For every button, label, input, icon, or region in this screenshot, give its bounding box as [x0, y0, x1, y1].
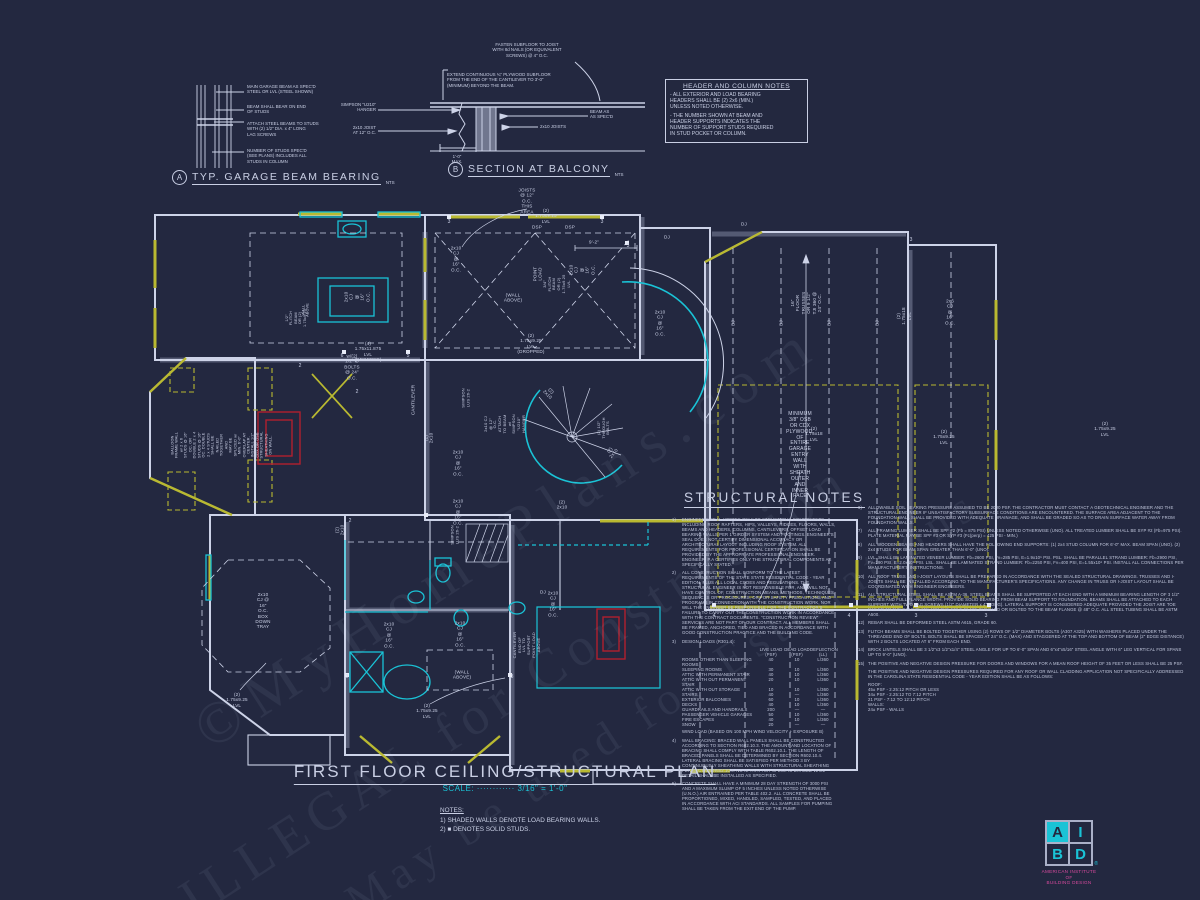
structural-note: 10)ALL ROOF TRUSS AND I-JOIST LAYOUTS SH…	[858, 574, 1188, 589]
registered-mark: ®	[1094, 861, 1098, 867]
load-value: 10	[784, 677, 810, 687]
plan-label: 2x6 CJ @ 16" O.C.	[945, 298, 955, 325]
note-text: ENGINEER'S SEAL APPLIES ONLY TO STRUCTUR…	[682, 517, 836, 567]
aibd-caption: AMERICAN INSTITUTE OF BUILDING DESIGN	[1030, 869, 1108, 886]
detail-a-note: ATTACH STEEL BEAMS TO STUDS WITH (2) 1/2…	[247, 121, 319, 137]
note-number	[858, 682, 868, 712]
plan-label: BJ	[778, 320, 783, 326]
detail-b-nts: NTS	[615, 172, 624, 177]
plan-label: SIMPSON LUS 26-2	[461, 388, 470, 408]
plan-label: (WALL ABOVE)	[453, 670, 471, 681]
detail-a-note: MAIN GARAGE BEAM AS SPEC'D STEEL OR LVL …	[247, 84, 316, 95]
stud-count: 3	[601, 219, 604, 225]
aibd-letter-i: I	[1069, 821, 1092, 843]
note-number: 12)	[858, 620, 868, 625]
plan-label: (2) 1.75x9.25 LVL	[1094, 421, 1116, 437]
stud-count: 3	[448, 219, 451, 225]
structural-note: 7)ALL FRAMING LUMBER SHALL BE SPF #2 (Fb…	[858, 528, 1188, 538]
plan-note-2: 2) ■ DENOTES SOLID STUDS.	[440, 825, 600, 835]
stud-count: 2	[356, 389, 359, 395]
plan-label: (WALL ABOVE)	[504, 293, 522, 304]
load-table-col-header: LIVE LOAD (PSF)	[758, 647, 784, 657]
structural-note: 6)ALLOWABLE SOIL BEARING PRESSURE ASSUME…	[858, 505, 1188, 525]
note-number: 13)	[858, 629, 868, 644]
balcony-label-max: 1'-0" MAX.	[452, 154, 463, 165]
stud-count: 5	[407, 353, 410, 359]
note-number: 5)	[672, 781, 682, 811]
note-text: FLITCH BEAMS SHALL BE BOLTED TOGETHER US…	[868, 629, 1188, 644]
structural-note: 15)THE POSITIVE AND NEGATIVE DESIGN PRES…	[858, 661, 1188, 666]
note-text: DESIGN LOADS (R301.4):	[682, 639, 836, 644]
stud-count: 3	[511, 674, 514, 680]
detail-a-bubble: A	[172, 170, 187, 185]
stud-count: 2	[299, 363, 302, 369]
detail-b-title: B SECTION AT BALCONY NTS	[448, 162, 624, 177]
plan-label: (2) 1/2" THROUGH BOLTS	[597, 417, 611, 438]
blueprint-sheet: ©MyHomePlans.comILLEGAL for Construction…	[0, 0, 1200, 900]
load-value: 10	[784, 657, 810, 667]
note-number: 1)	[672, 517, 682, 567]
plan-label: BJ	[874, 320, 879, 326]
stud-count: 2	[349, 518, 352, 524]
structural-note: 13)FLITCH BEAMS SHALL BE BOLTED TOGETHER…	[858, 629, 1188, 644]
note-text: LVL. SHALL BE LAMINATED VENEER LUMBER: F…	[868, 555, 1188, 570]
plan-label: w/(2) 1/2" Ø BOLTS @ 24" O.C.	[344, 353, 359, 380]
load-table-col-header: DEFLECTION (LL)	[810, 647, 836, 657]
note-number: 14)	[858, 647, 868, 657]
note-number: 3)	[672, 639, 682, 644]
note-text: BRICK LINTELS SHALL BE 3 1/2"x3 1/2"x1/4…	[868, 647, 1188, 657]
load-value: —	[784, 722, 810, 727]
balcony-label-beam: BEAM AS AS SPEC'D	[590, 109, 613, 120]
structural-note: 12)REBAR SHALL BE DEFORMED STEEL ASTM A6…	[858, 620, 1188, 625]
plan-label: (2) 2x10	[557, 500, 568, 511]
load-table-row: SNOW20——	[682, 722, 836, 727]
plan-label: JOISTS @ 12" O.C. THIS AREA	[519, 187, 536, 214]
detail-a-drawing	[197, 85, 244, 168]
plan-label: CANTILEVER END OF LVL TO SUPPORT POINT L…	[513, 632, 541, 659]
note-text: ROOF: 45± PSF - 2.25:12 PITCH OR LESS 34…	[868, 682, 1188, 712]
detail-a-title: A TYP. GARAGE BEAM BEARING NTS	[172, 170, 395, 185]
note-number: 11)	[858, 592, 868, 617]
aibd-letter-d: D	[1069, 843, 1092, 865]
plan-label: 2x10 CJ @ 16" O.C. BOX DOWN TRAY	[255, 592, 270, 630]
detail-a-note: NUMBER OF STUDS SPEC'D (SEE PLANS) INCLU…	[247, 148, 307, 164]
header-notes-title: HEADER AND COLUMN NOTES	[670, 83, 803, 90]
plan-label: (2) 2x10	[335, 525, 346, 536]
note-number: 10)	[858, 574, 868, 589]
stud-count: 3	[346, 674, 349, 680]
stud-count: 4	[713, 613, 716, 619]
plan-label: DJ	[540, 589, 546, 594]
detail-a-note: BEAM SHALL BEAR ON END OF STUDS	[247, 104, 306, 115]
balcony-label-hanger: SIMPSON "U210" HANGER	[341, 102, 376, 113]
plan-label: (2) 2x10	[424, 433, 435, 444]
plan-label: 2x10 CJ @ 12" O.C. ATTACH TO BEAM w/ SIM…	[484, 414, 526, 434]
plan-label: CANTILEVER	[410, 385, 415, 415]
structural-note: ROOF: 45± PSF - 2.25:12 PITCH OR LESS 34…	[858, 682, 1188, 712]
detail-a-title-text: TYP. GARAGE BEAM BEARING	[192, 171, 381, 185]
balcony-label-joist: 2x10 JOIST AT 12" O.C.	[353, 125, 376, 136]
stud-count: 6	[341, 353, 344, 359]
plan-scale: SCALE: ············ 3/16" = 1'-0"	[443, 784, 568, 793]
aibd-logo-grid: A I B D ®	[1045, 820, 1093, 866]
load-value: 20	[758, 677, 784, 687]
note-text: ALLOWABLE SOIL BEARING PRESSURE ASSUMED …	[868, 505, 1188, 525]
structural-notes-right-column: 6)ALLOWABLE SOIL BEARING PRESSURE ASSUME…	[858, 505, 1188, 716]
plan-label: MINIMUM 3/8" OSB OR CDX PLYWOOD, OF ENTI…	[786, 412, 814, 500]
plan-label: 3/4" FLITCH BEAM OR (2) 1.75x9.25 LVL	[543, 275, 571, 294]
plan-label: DJ	[664, 234, 670, 239]
balcony-note-extend: EXTEND CONTINUOUS ¾" PLYWOOD SUBFLOOR FR…	[447, 72, 551, 88]
stud-count: 3	[985, 613, 988, 619]
aibd-letter-a: A	[1046, 821, 1069, 843]
structural-note: 9)LVL. SHALL BE LAMINATED VENEER LUMBER:…	[858, 555, 1188, 570]
plan-label: (2) 1.75x9.25 LVL (DROPPED)	[517, 333, 544, 355]
stud-count: 3	[915, 613, 918, 619]
door-swings	[312, 374, 352, 418]
structural-note: THE POSITIVE AND NEGATIVE DESIGN PRESSUR…	[858, 669, 1188, 679]
structural-note: 5)CONCRETE SHALL HAVE A MINIMUM 28 DAY S…	[672, 781, 836, 811]
note-text: CONCRETE SHALL HAVE A MINIMUM 28 DAY STR…	[682, 781, 836, 811]
plan-label: 2x10 CJ @ 16" O.C.	[384, 621, 395, 648]
balcony-note-fasten: FASTEN SUBFLOOR TO JOIST WITH 8d NAILS (…	[492, 42, 561, 58]
header-column-notes-box: HEADER AND COLUMN NOTES - ALL EXTERIOR A…	[665, 79, 808, 143]
plan-note-1: 1) SHADED WALLS DENOTE LOAD BEARING WALL…	[440, 816, 600, 826]
load-table: LIVE LOAD (PSF)DEAD LOAD (PSF)DEFLECTION…	[682, 647, 836, 734]
header-notes-body: - ALL EXTERIOR AND LOAD BEARING HEADERS …	[670, 92, 803, 137]
note-text: ALL FRAMING LUMBER SHALL BE SPF #2 (Fb =…	[868, 528, 1188, 538]
structural-notes-title: STRUCTURAL NOTES	[684, 490, 865, 508]
header-note-item: - ALL EXTERIOR AND LOAD BEARING HEADERS …	[670, 92, 803, 111]
load-table-header: LIVE LOAD (PSF)DEAD LOAD (PSF)DEFLECTION…	[682, 647, 836, 657]
plan-label: 2x10 CJ @ 16" O.C.	[451, 245, 462, 272]
plan-notes: NOTES: 1) SHADED WALLS DENOTE LOAD BEARI…	[440, 806, 600, 835]
plan-label: BALLOON FRAME WALL w/ 2 x 6 STUDS @ 16" …	[171, 431, 274, 458]
balcony-label-joists2: 2x10 JOISTS	[540, 124, 566, 129]
load-value: L/360	[810, 677, 836, 687]
load-value: 40	[758, 657, 784, 667]
note-text: ALL ROOF TRUSS AND I-JOIST LAYOUTS SHALL…	[868, 574, 1188, 589]
plan-label: DSP	[532, 224, 542, 229]
note-text: REBAR SHALL BE DEFORMED STEEL ASTM A615,…	[868, 620, 1188, 625]
note-number: 8)	[858, 542, 868, 552]
note-text: ALL WOODEN BEAMS AND HEADERS SHALL HAVE …	[868, 542, 1188, 552]
plan-label: 2x10 CJ @ 16" O.C.	[453, 449, 464, 476]
load-table-row: ROOMS OTHER THAN SLEEPING ROOMS4010L/360	[682, 657, 836, 667]
load-category: ATTIC WITH OUT PERMANENT STAIR	[682, 677, 758, 687]
note-number: 6)	[858, 505, 868, 525]
stud-count: 3	[910, 237, 913, 243]
note-text: THE POSITIVE AND NEGATIVE DESIGN PRESSUR…	[868, 669, 1188, 679]
wind-load-line: WIND LOAD (BASED ON 100 MPH WIND VELOCIT…	[682, 729, 836, 734]
load-table-title: 3)DESIGN LOADS (R301.4):	[672, 639, 836, 644]
structural-note: 2)ALL CONSTRUCTION SHALL CONFORM TO THE …	[672, 570, 836, 635]
plan-label: 2x10 CJ @ 16" O.C.	[343, 292, 370, 303]
note-number: 9)	[858, 555, 868, 570]
plan-label: 2x10 CJ @ 16" O.C.	[568, 265, 595, 276]
structural-note: 14)BRICK LINTELS SHALL BE 3 1/2"x3 1/2"x…	[858, 647, 1188, 657]
plan-label: BJ	[826, 320, 831, 326]
plan-notes-title: NOTES:	[440, 806, 600, 816]
stud-count: 3	[627, 243, 630, 249]
plan-label: DSP	[565, 224, 575, 229]
plan-label: SIMPSON LUS 26-2	[450, 525, 459, 545]
stud-count: 4	[848, 613, 851, 619]
load-table-corner	[682, 647, 758, 657]
detail-a-nts: NTS	[386, 180, 395, 185]
structural-note: 1)ENGINEER'S SEAL APPLIES ONLY TO STRUCT…	[672, 517, 836, 567]
structural-note: 11)ALL STRUCTURAL STEEL SHALL BE ASTM A-…	[858, 592, 1188, 617]
plan-label: (2) 1.75x9.25 LVL	[416, 703, 438, 719]
load-value: 20	[758, 722, 784, 727]
load-category: ROOMS OTHER THAN SLEEPING ROOMS	[682, 657, 758, 667]
load-table-row: ATTIC WITH OUT PERMANENT STAIR2010L/360	[682, 677, 836, 687]
plan-label: 2x10 CJ @ 16" O.C.	[453, 498, 464, 525]
plan-label: (2) 1.75x18 LVL	[896, 307, 912, 324]
kitchen-island	[206, 212, 420, 600]
plan-label: DJ	[741, 221, 747, 226]
note-number	[858, 669, 868, 679]
plan-label: 2x10 CJ @ 16" O.C.	[455, 620, 466, 647]
plan-label: 16" FLOOR TRUSSES OR 9 1/2" TJI 360 @ 24…	[790, 292, 822, 315]
aibd-logo: A I B D ® AMERICAN INSTITUTE OF BUILDING…	[1030, 820, 1108, 886]
plan-label: BJ	[730, 320, 735, 326]
aibd-letter-b: B	[1046, 843, 1069, 865]
load-table-col-header: DEAD LOAD (PSF)	[784, 647, 810, 657]
load-category: SNOW	[682, 722, 758, 727]
plan-label: 2x10 CJ @ 16" O.C.	[548, 590, 559, 617]
note-number: 15)	[858, 661, 868, 666]
load-value: L/360	[810, 657, 836, 667]
note-text: THE POSITIVE AND NEGATIVE DESIGN PRESSUR…	[868, 661, 1188, 666]
plan-label: POINT LOAD	[533, 267, 544, 282]
plan-label: WALL ABOVE	[302, 303, 311, 317]
note-number: 2)	[672, 570, 682, 635]
plan-label: (2) 1.75x9.25 LVL	[933, 429, 955, 445]
plan-label: (2) 1.75x9.25 LVL	[535, 208, 557, 224]
plan-title: FIRST FLOOR CEILING/STRUCTURAL PLAN	[294, 762, 716, 785]
note-text: ALL CONSTRUCTION SHALL CONFORM TO THE LA…	[682, 570, 836, 635]
load-value: —	[810, 722, 836, 727]
header-note-item: - THE NUMBER SHOWN AT BEAM AND HEADER SU…	[670, 113, 803, 138]
plan-label: 2x10 CJ @ 16" O.C.	[655, 309, 666, 336]
detail-b-title-text: SECTION AT BALCONY	[468, 163, 610, 177]
plan-label: (2) 1.75x9.25 LVL	[226, 692, 248, 708]
note-number: 7)	[858, 528, 868, 538]
plan-label: 9'-2"	[589, 239, 599, 244]
structural-note: 8)ALL WOODEN BEAMS AND HEADERS SHALL HAV…	[858, 542, 1188, 552]
